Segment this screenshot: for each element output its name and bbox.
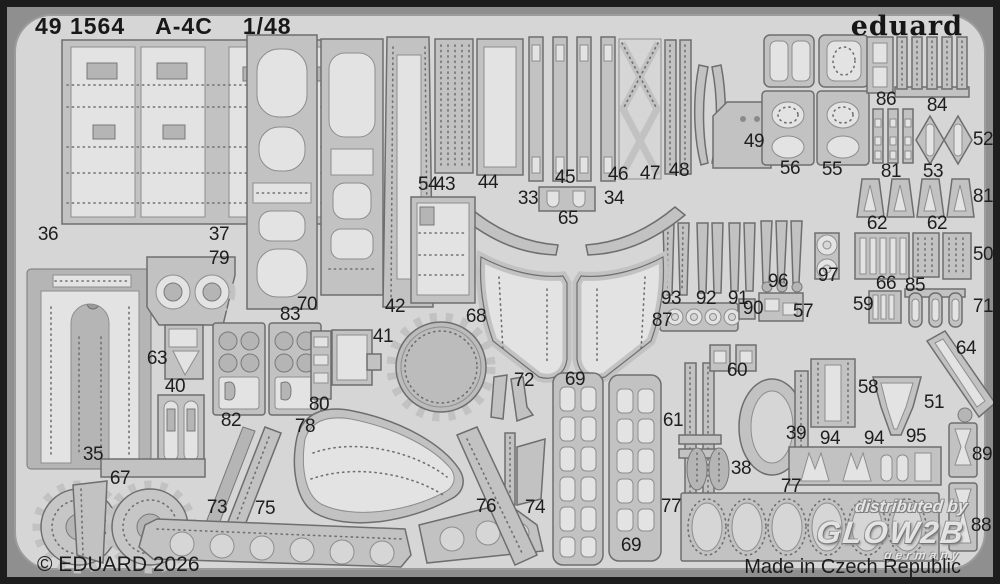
part-number-label: 40 <box>165 376 185 398</box>
part-number-label: 62 <box>927 213 947 235</box>
part-number-label: 75 <box>255 498 275 520</box>
kit-name: A-4C <box>155 13 213 39</box>
part-number-label: 83 <box>280 304 300 326</box>
part-cluster-94-95 <box>789 447 941 485</box>
part-number-label: 77 <box>661 496 681 518</box>
part-number-label: 41 <box>373 326 393 348</box>
part-number-label: 52 <box>973 129 993 151</box>
part-cluster-62 <box>857 179 974 217</box>
part-cluster-78 <box>294 409 463 523</box>
part-number-label: 60 <box>727 360 747 382</box>
part-number-label: 88 <box>971 515 991 537</box>
fret-artwork <box>7 7 1000 584</box>
part-number-label: 79 <box>209 248 229 270</box>
part-cluster-82 <box>213 323 321 415</box>
part-cluster-46 <box>619 39 661 179</box>
part-cluster-63 <box>165 325 203 379</box>
part-number-label: 81 <box>881 161 901 183</box>
sheet-title: 49 1564A-4C1/48 <box>35 13 322 40</box>
part-number-label: 78 <box>295 416 315 438</box>
part-cluster-58 <box>811 359 855 427</box>
part-number-label: 47 <box>640 163 660 185</box>
part-number-label: 64 <box>956 338 976 360</box>
part-number-label: 39 <box>786 423 806 445</box>
part-number-label: 61 <box>663 410 683 432</box>
part-cluster-43-44 <box>435 39 523 175</box>
part-number-label: 81 <box>973 186 993 208</box>
part-cluster-54 <box>411 197 475 303</box>
part-cluster-86-84 <box>867 37 969 97</box>
part-number-label: 48 <box>669 160 689 182</box>
part-number-label: 36 <box>38 224 58 246</box>
part-number-label: 45 <box>555 167 575 189</box>
part-cluster-45 <box>529 37 615 181</box>
photoetch-sheet-photo: 49 1564A-4C1/48 eduard 36377963403567827… <box>0 0 1000 584</box>
part-cluster-47-48-49 <box>665 40 771 174</box>
part-number-label: 66 <box>876 273 896 295</box>
part-number-label: 43 <box>435 174 455 196</box>
part-cluster-55-56 <box>762 35 869 165</box>
part-number-label: 46 <box>608 164 628 186</box>
part-cluster-70 <box>247 35 317 309</box>
copyright-text: © EDUARD 2026 <box>37 553 200 577</box>
part-cluster-77 <box>681 493 939 561</box>
part-number-label: 56 <box>780 158 800 180</box>
part-cluster-41-80 <box>311 330 381 399</box>
part-number-label: 33 <box>518 188 538 210</box>
part-number-label: 94 <box>820 428 840 450</box>
part-number-label: 73 <box>207 497 227 519</box>
part-number-label: 63 <box>147 348 167 370</box>
part-number-label: 92 <box>696 288 716 310</box>
part-number-label: 50 <box>973 244 993 266</box>
kit-scale: 1/48 <box>243 13 292 39</box>
part-number-label: 72 <box>514 370 534 392</box>
part-number-label: 84 <box>927 95 947 117</box>
part-number-label: 77 <box>781 476 801 498</box>
catalog-number: 49 1564 <box>35 13 125 39</box>
part-number-label: 35 <box>83 444 103 466</box>
part-number-label: 55 <box>822 159 842 181</box>
part-number-label: 97 <box>818 265 838 287</box>
part-number-label: 96 <box>768 271 788 293</box>
part-number-label: 67 <box>110 468 130 490</box>
part-number-label: 62 <box>867 213 887 235</box>
part-number-label: 86 <box>876 89 896 111</box>
part-number-label: 91 <box>728 288 748 310</box>
part-number-label: 76 <box>476 496 496 518</box>
part-number-label: 68 <box>466 306 486 328</box>
eduard-logo: eduard <box>851 11 963 42</box>
part-number-label: 82 <box>221 410 241 432</box>
part-number-label: 44 <box>478 172 498 194</box>
part-cluster-83 <box>321 39 383 295</box>
part-number-label: 53 <box>923 161 943 183</box>
part-cluster-35 <box>27 269 151 469</box>
part-number-label: 80 <box>309 394 329 416</box>
part-number-label: 65 <box>558 208 578 230</box>
part-number-label: 69 <box>565 369 585 391</box>
part-number-label: 42 <box>385 296 405 318</box>
part-cluster-66-85-50 <box>855 233 971 279</box>
part-number-label: 85 <box>905 275 925 297</box>
part-number-label: 94 <box>864 428 884 450</box>
part-number-label: 59 <box>853 294 873 316</box>
part-number-label: 37 <box>209 224 229 246</box>
part-number-label: 69 <box>621 535 641 557</box>
part-number-label: 57 <box>793 301 813 323</box>
part-number-label: 93 <box>661 288 681 310</box>
part-cluster-69 <box>553 373 661 565</box>
part-cluster-68 <box>391 317 491 417</box>
part-number-label: 89 <box>972 444 992 466</box>
part-number-label: 49 <box>744 131 764 153</box>
part-number-label: 71 <box>973 296 993 318</box>
part-number-label: 51 <box>924 392 944 414</box>
part-cluster-52-53-81 <box>873 109 972 164</box>
part-number-label: 95 <box>906 426 926 448</box>
part-number-label: 58 <box>858 377 878 399</box>
part-number-label: 87 <box>652 310 672 332</box>
part-number-label: 74 <box>525 497 545 519</box>
made-in-text: Made in Czech Republic <box>744 556 961 579</box>
part-number-label: 38 <box>731 458 751 480</box>
part-number-label: 34 <box>604 188 624 210</box>
